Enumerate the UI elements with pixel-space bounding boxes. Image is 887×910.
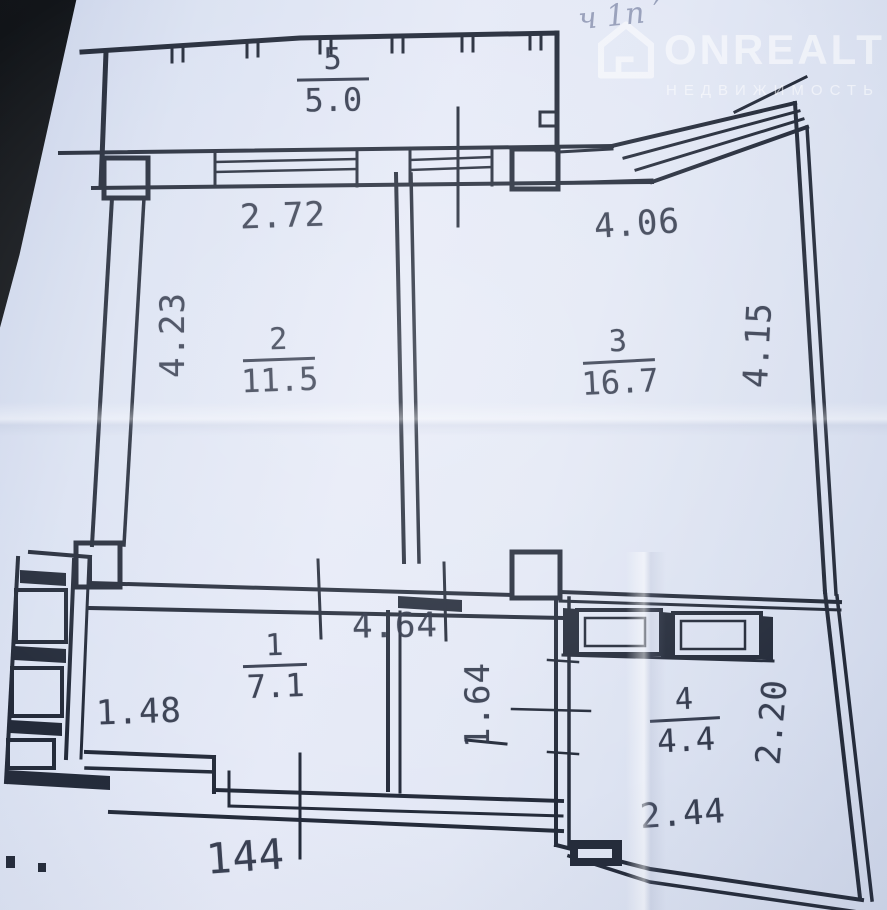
dim-room3-width: 4.06 xyxy=(593,201,681,247)
dim-room2-width: 2.72 xyxy=(239,195,326,238)
room2-number: 2 xyxy=(242,323,315,362)
room-divider-wall xyxy=(396,174,419,562)
middle-wall xyxy=(30,552,562,640)
dim-room3-depth: 4.15 xyxy=(736,298,781,392)
dim-room1-width: 4.64 xyxy=(352,605,439,646)
room4-area: 4.4 xyxy=(656,719,716,759)
watermark-brand: ONREALT xyxy=(664,26,885,74)
floor-plan-drawing xyxy=(0,0,887,910)
column-pillar xyxy=(512,552,560,598)
column-pillar xyxy=(104,158,148,198)
room3-number: 3 xyxy=(581,324,655,364)
room2-label: 2 11.5 xyxy=(242,323,317,399)
room4-number: 4 xyxy=(648,682,720,722)
room3-right-wall xyxy=(795,103,836,594)
dim-hall-depth: 1.64 xyxy=(458,659,498,751)
room5-number: 5 xyxy=(296,43,369,81)
room4-label: 4 4.4 xyxy=(648,682,722,759)
dim-tick xyxy=(318,560,321,638)
dim-room1-left: 1.48 xyxy=(95,691,182,734)
room1-label: 1 7.1 xyxy=(242,629,309,704)
watermark: ONREALT НЕДВИЖИМОСТЬ xyxy=(598,20,885,99)
room1-area: 7.1 xyxy=(246,665,305,704)
dim-room4-width: 2.44 xyxy=(639,791,727,837)
room2-area: 11.5 xyxy=(240,359,318,398)
watermark-subtitle: НЕДВИЖИМОСТЬ xyxy=(666,82,885,99)
room2-left-wall xyxy=(76,158,148,587)
dim-tick xyxy=(444,563,446,640)
room3-area: 16.7 xyxy=(581,360,660,401)
floorplan-photo: 5 5.0 2 11.5 3 16.7 1 7.1 4 4.4 2.72 4.0… xyxy=(0,0,887,910)
dim-room1-bottom: 144 xyxy=(204,829,286,883)
column-pillar xyxy=(76,543,120,587)
room1-number: 1 xyxy=(242,629,307,668)
photo-specks xyxy=(6,856,46,872)
room1-bottom-wall xyxy=(86,752,562,858)
left-balcony-strip xyxy=(6,558,110,790)
room5-label: 5 5.0 xyxy=(296,43,369,117)
dim-room2-depth: 4.23 xyxy=(153,289,193,381)
room5-area: 5.0 xyxy=(304,80,362,118)
dim-room4-depth: 2.20 xyxy=(748,674,796,769)
room3-label: 3 16.7 xyxy=(581,324,657,401)
room4-windows xyxy=(563,608,773,661)
